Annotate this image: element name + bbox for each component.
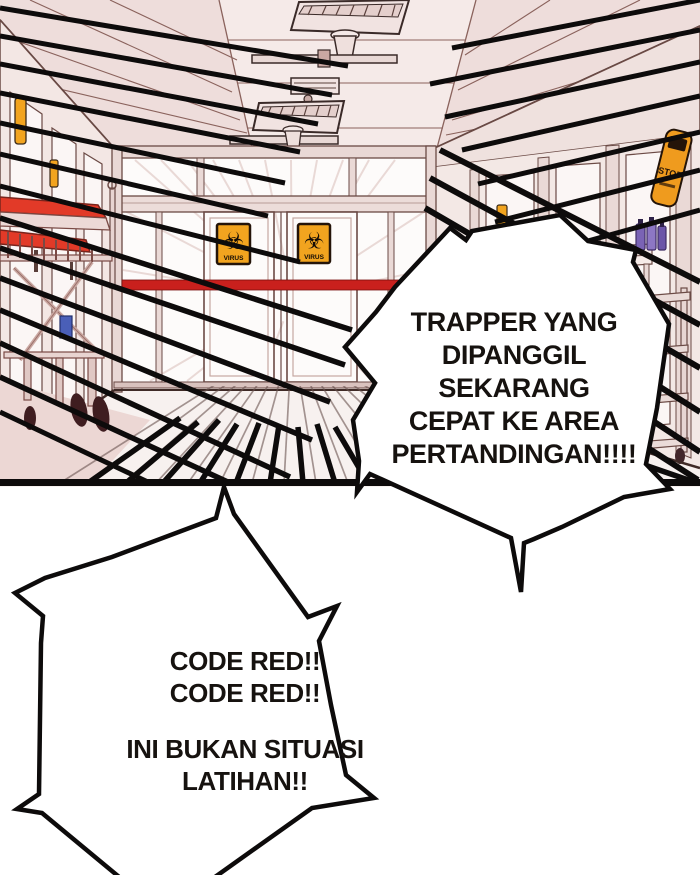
- virus-sign-label: VIRUS: [304, 254, 325, 261]
- iv-pole: [110, 188, 115, 288]
- bubble-line: PERTANDINGAN!!!!: [368, 438, 660, 471]
- bubble-line: CODE RED!!: [99, 645, 391, 677]
- medicine-bottle: [658, 226, 666, 250]
- wall-sign: [15, 98, 26, 144]
- bubble-line: CEPAT KE AREA: [368, 405, 660, 438]
- bubble-line: INI BUKAN SITUASI: [99, 733, 391, 765]
- speech-bubble-alarm-text: CODE RED!! CODE RED!! INI BUKAN SITUASI …: [99, 645, 391, 797]
- ceiling-vent-icon: [291, 0, 409, 34]
- bubble-line: CODE RED!!: [99, 677, 391, 709]
- biohazard-icon: ☣: [304, 229, 325, 255]
- bubble-line-spacer: [99, 709, 391, 733]
- red-warning-stripe: [122, 280, 428, 290]
- speech-bubble-announcement-text: TRAPPER YANG DIPANGGIL SEKARANG CEPAT KE…: [368, 306, 660, 471]
- virus-sign-label: VIRUS: [224, 255, 245, 262]
- bubble-line: TRAPPER YANG: [368, 306, 660, 339]
- comic-page: STOP: [0, 0, 700, 875]
- bubble-line: DIPANGGIL SEKARANG: [368, 339, 660, 405]
- bubble-line: LATIHAN!!: [99, 765, 391, 797]
- biohazard-virus-sign-right: ☣ VIRUS: [298, 224, 330, 263]
